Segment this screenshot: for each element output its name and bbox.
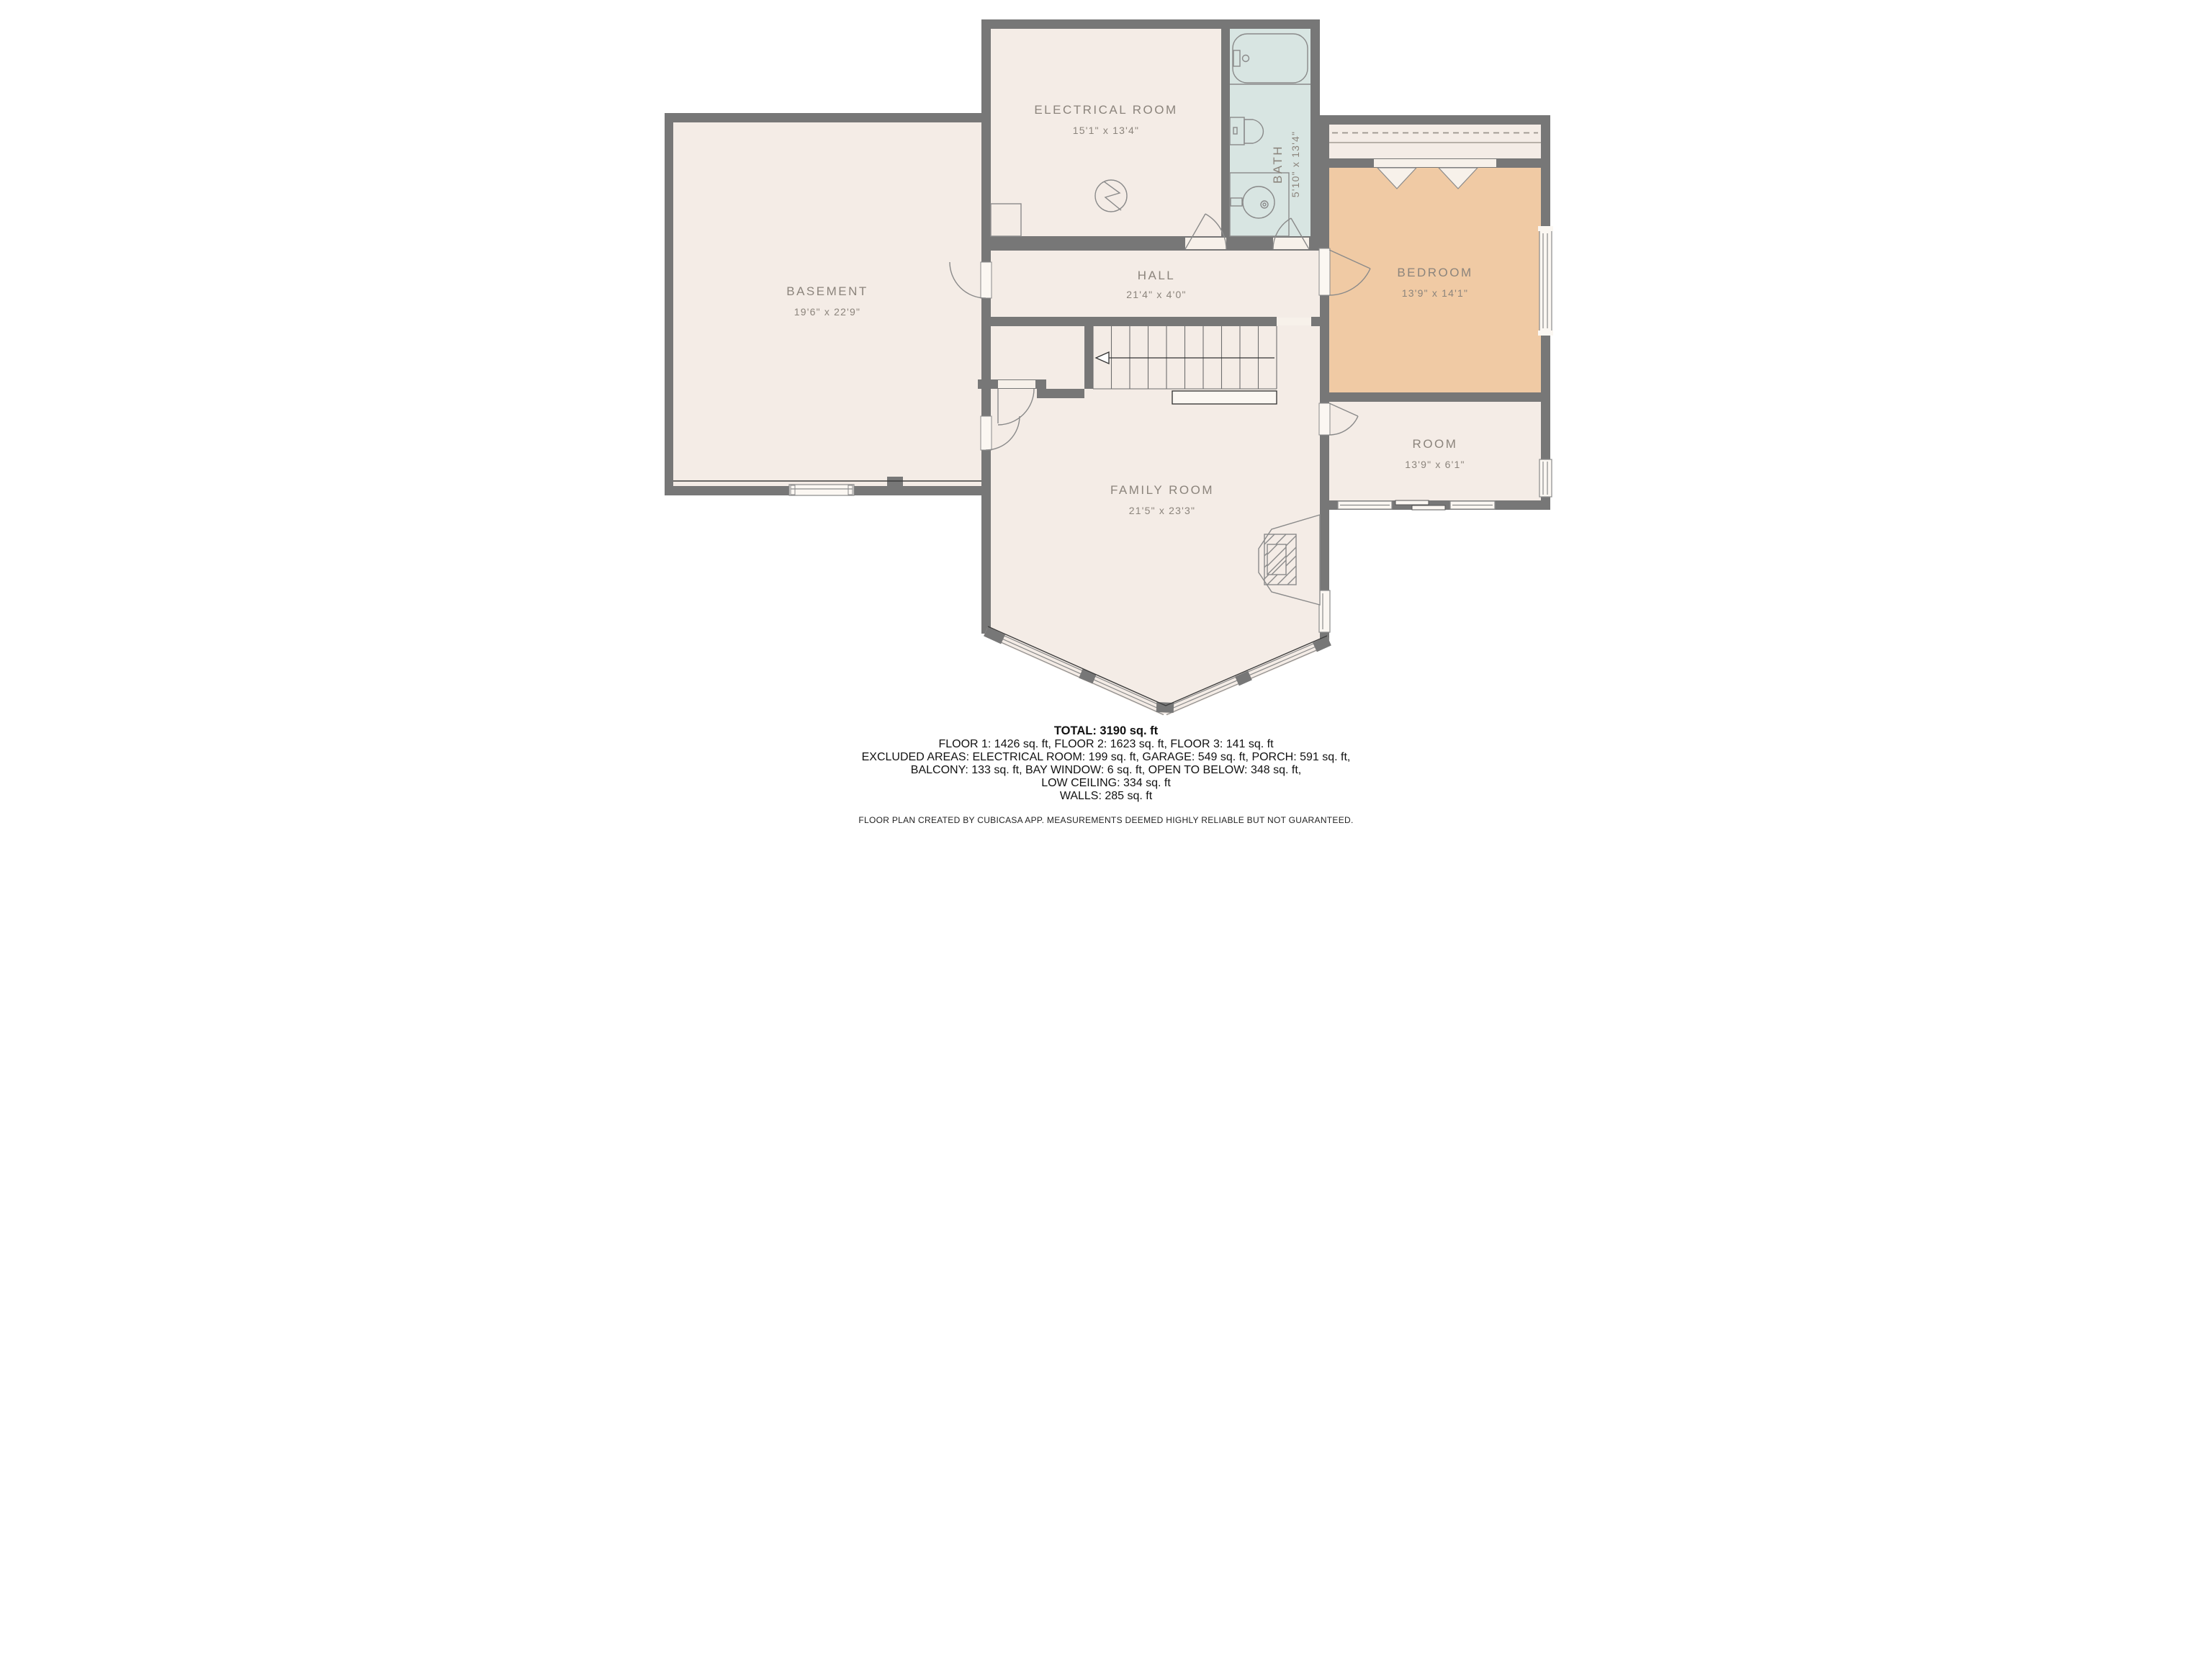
summary-floors: FLOOR 1: 1426 sq. ft, FLOOR 2: 1623 sq. …: [938, 738, 1274, 750]
electrical-bath-wall: [1221, 29, 1230, 236]
summary-excluded-1: EXCLUDED AREAS: ELECTRICAL ROOM: 199 sq.…: [862, 751, 1351, 763]
basement-right-wall: [981, 113, 991, 634]
floor-plan-page: BASEMENT 19'6" x 22'9" ELECTRICAL ROOM 1…: [553, 0, 1659, 829]
right-block-top-wall: [1320, 115, 1550, 125]
basement-window: [789, 485, 854, 495]
basement-dims: 19'6" x 22'9": [794, 306, 860, 318]
room-dims: 13'9" x 6'1": [1405, 459, 1465, 470]
electrical-label: ELECTRICAL ROOM: [1034, 103, 1177, 117]
hall-floor: [991, 251, 1320, 317]
bedroom-bottom-wall: [1320, 392, 1550, 402]
bedroom-label: BEDROOM: [1397, 266, 1473, 279]
summary-block: TOTAL: 3190 sq. ft FLOOR 1: 1426 sq. ft,…: [858, 724, 1353, 825]
bedroom-dims: 13'9" x 14'1": [1402, 287, 1468, 299]
prow-wall-chunk: [1081, 673, 1094, 679]
bath-dims: 5'10" x 13'4": [1290, 131, 1301, 197]
summary-excluded-3: LOW CEILING: 334 sq. ft: [1041, 777, 1171, 789]
hall-end-opening: [1277, 318, 1311, 325]
closet-door-sill: [998, 380, 1035, 388]
prow-wall-chunk: [1237, 675, 1250, 681]
bath-label: BATH: [1271, 145, 1285, 184]
top-outer-wall: [981, 19, 1320, 29]
room-floor: [1329, 402, 1541, 500]
family-right-window: [1319, 590, 1330, 632]
basement-left-wall: [665, 113, 673, 495]
bedroom-left-wall: [1320, 115, 1329, 510]
bedroom-window: [1538, 226, 1553, 336]
room-bottom-window-right: [1450, 501, 1495, 509]
basement-label: BASEMENT: [786, 284, 868, 298]
hall-label: HALL: [1138, 269, 1176, 282]
basement-wall-stub: [887, 477, 903, 495]
basement-floor: [673, 122, 981, 486]
summary-disclaimer: FLOOR PLAN CREATED BY CUBICASA APP. MEAS…: [858, 815, 1353, 825]
room-bottom-window-left: [1338, 501, 1392, 509]
prow-tip-chunk: [1156, 707, 1174, 708]
bedroom-top-opening: [1374, 159, 1496, 167]
basement-top-wall: [665, 113, 991, 122]
hall-bottom-wall-end: [1311, 317, 1321, 326]
room-right-window: [1539, 459, 1552, 497]
summary-total: TOTAL: 3190 sq. ft: [1054, 724, 1159, 737]
strip-divider-line: [1329, 142, 1541, 143]
hall-top-wall: [981, 236, 1322, 251]
bedroom-floor: [1329, 168, 1541, 392]
electrical-left-wall: [981, 19, 991, 113]
bath-right-wall: [1310, 19, 1320, 236]
prow-wall-chunk: [1315, 641, 1329, 647]
summary-excluded-2: BALCONY: 133 sq. ft, BAY WINDOW: 6 sq. f…: [911, 764, 1301, 776]
stair-left-wall: [1084, 317, 1093, 389]
floor-plan-canvas: BASEMENT 19'6" x 22'9" ELECTRICAL ROOM 1…: [553, 0, 1659, 829]
hall-dims: 21'4" x 4'0": [1126, 289, 1186, 300]
electrical-dims: 15'1" x 13'4": [1073, 125, 1139, 136]
summary-walls: WALLS: 285 sq. ft: [1060, 790, 1153, 802]
low-ceiling-strip-floor: [1329, 143, 1541, 158]
prow-wall-chunk: [986, 631, 1003, 639]
room-label: ROOM: [1413, 437, 1458, 451]
electrical-closet: [991, 204, 1021, 236]
stair-landing: [1172, 391, 1277, 404]
landing-wall-right: [1037, 389, 1084, 398]
family-room-dims: 21'5" x 23'3": [1129, 505, 1195, 516]
family-room-label: FAMILY ROOM: [1110, 483, 1214, 497]
hall-bottom-wall: [981, 317, 1277, 326]
